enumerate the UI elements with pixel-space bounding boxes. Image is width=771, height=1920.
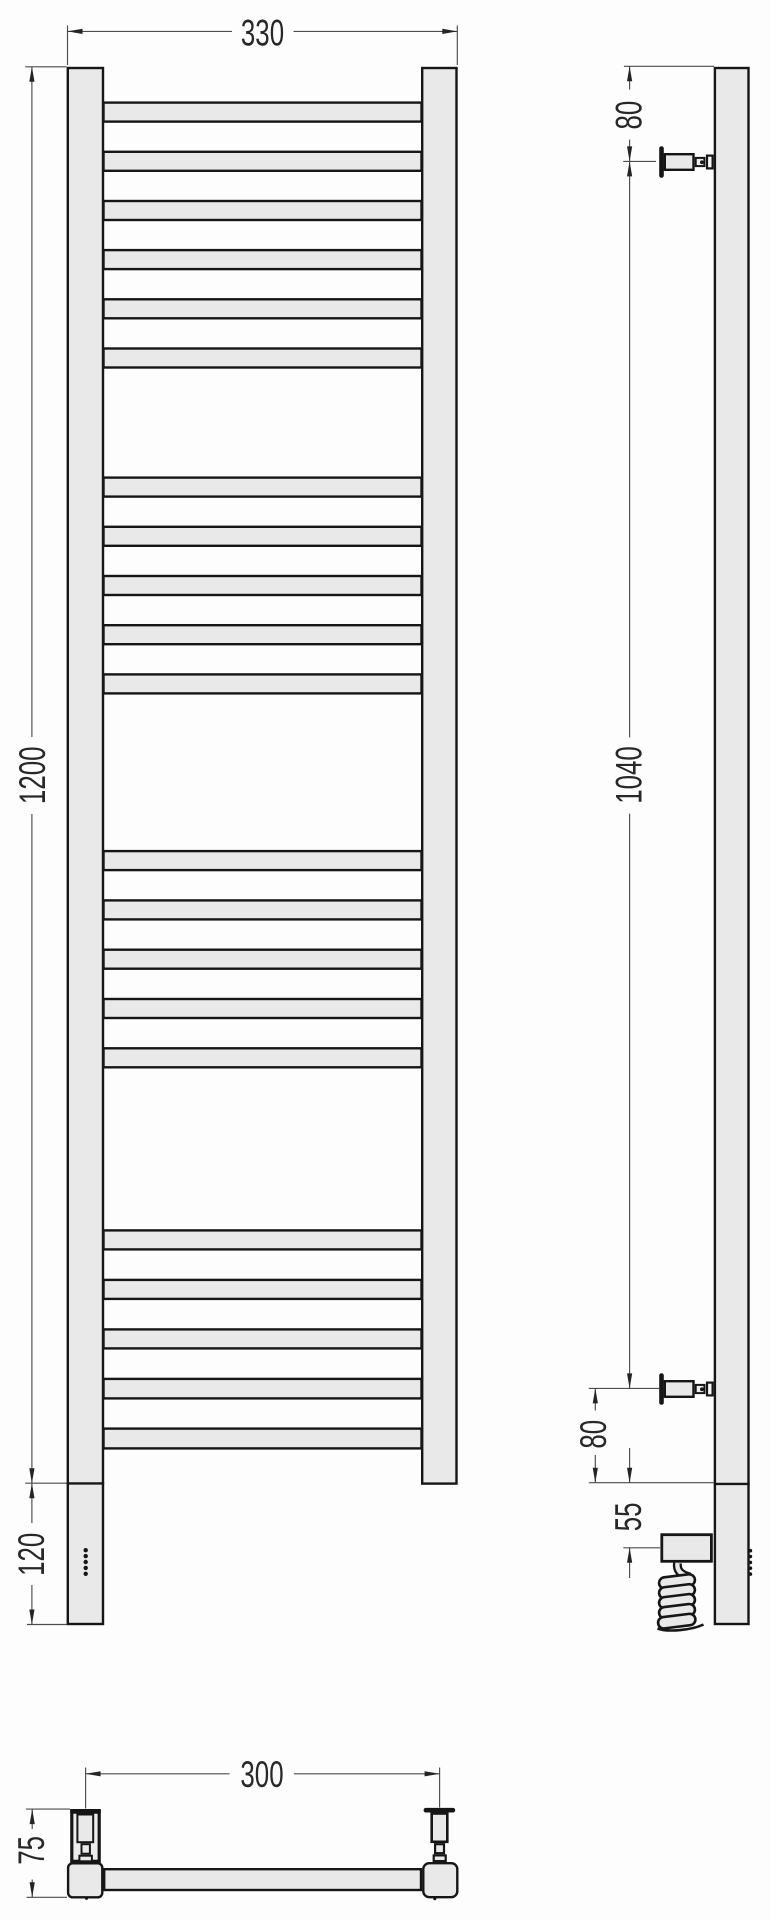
svg-text:300: 300 [240, 1753, 283, 1795]
svg-text:1040: 1040 [608, 746, 650, 804]
svg-text:120: 120 [10, 1533, 52, 1576]
svg-text:80: 80 [608, 101, 650, 130]
svg-text:330: 330 [241, 12, 284, 54]
svg-text:55: 55 [607, 1503, 649, 1532]
svg-text:1200: 1200 [11, 747, 53, 805]
svg-text:80: 80 [572, 1420, 614, 1449]
svg-text:75: 75 [10, 1836, 52, 1865]
